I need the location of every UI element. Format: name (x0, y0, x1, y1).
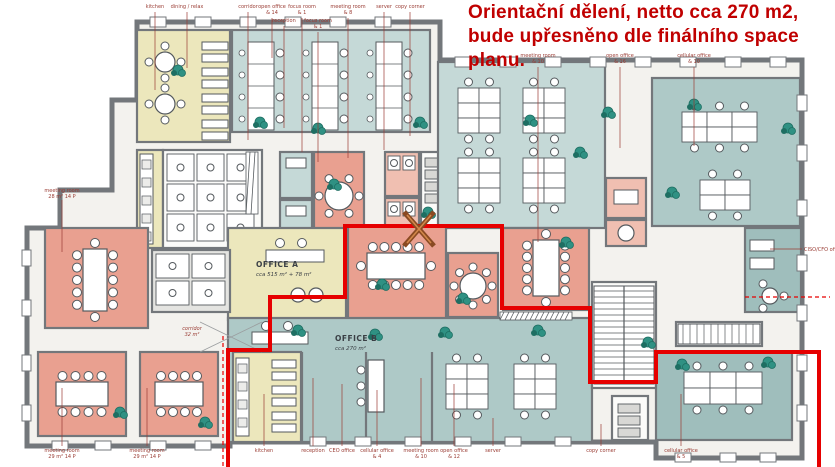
room-focus-booth-2 (606, 220, 646, 246)
svg-text:& 1: & 1 (314, 24, 323, 30)
annotation-text: Orientační dělení, netto cca 270 m2, bud… (468, 1, 799, 73)
room-open-office-mid (438, 62, 605, 228)
room-cellular-office-tr (652, 78, 800, 226)
room-kitchen-b (233, 352, 301, 442)
svg-text:CEO office: CEO office (329, 448, 355, 454)
room-ciso-cfo-office (745, 228, 801, 312)
svg-text:& 10: & 10 (415, 454, 427, 460)
room-stairs-main (592, 282, 656, 388)
room-dining-relax (137, 30, 230, 142)
svg-text:CISO/CFO office: CISO/CFO office (804, 247, 835, 253)
svg-text:28 m² 14 P: 28 m² 14 P (48, 194, 75, 200)
room-copy-corner-room (612, 396, 648, 440)
room-wc-mid-1 (385, 152, 419, 196)
floor-plan: kitchendining / relaxcorridoropen office… (0, 0, 835, 467)
room-meeting-room-bl1 (38, 352, 126, 436)
svg-text:32 m²: 32 m² (185, 332, 200, 338)
hatch-strip (500, 312, 572, 320)
plan-root: kitchendining / relaxcorridoropen office… (22, 4, 835, 467)
svg-text:corridor: corridor (238, 4, 258, 10)
svg-text:OFFICE A: OFFICE A (256, 260, 298, 269)
svg-text:server: server (485, 448, 502, 454)
svg-text:cca 515 m² + 78 m²: cca 515 m² + 78 m² (256, 271, 312, 278)
svg-text:server: server (376, 4, 393, 10)
annotation-line-1: Orientační dělení, netto cca 270 m2, (468, 1, 799, 25)
annotation-line-3: planu. (468, 49, 799, 73)
svg-text:& 14: & 14 (266, 10, 278, 16)
svg-text:& 12: & 12 (448, 454, 460, 460)
room-focus-booth-1 (606, 178, 646, 218)
svg-text:copy corner: copy corner (395, 4, 426, 10)
svg-text:& 8: & 8 (344, 10, 353, 16)
room-meeting-room-b (503, 228, 589, 310)
svg-text:cca 270 m²: cca 270 m² (335, 345, 367, 352)
svg-text:dining / relax: dining / relax (171, 4, 204, 10)
room-wc-left (152, 250, 230, 312)
room-stairs-low (676, 322, 762, 346)
svg-text:& 1: & 1 (298, 10, 307, 16)
hatch-strip (246, 152, 258, 214)
svg-text:copy corner: copy corner (586, 448, 617, 454)
svg-text:reception: reception (301, 448, 325, 454)
svg-text:29 m² 14 P: 29 m² 14 P (133, 454, 160, 460)
room-focus-room-1 (280, 152, 312, 198)
svg-text:reception: reception (272, 18, 296, 24)
room-round-room (448, 253, 498, 317)
svg-text:& 5: & 5 (677, 454, 686, 460)
svg-text:OFFICE B: OFFICE B (335, 334, 377, 343)
room-open-office-top (232, 30, 430, 132)
room-meeting-room-left (45, 228, 148, 328)
svg-text:kitchen: kitchen (146, 4, 164, 10)
svg-text:kitchen: kitchen (255, 448, 273, 454)
svg-text:29 m² 14 P: 29 m² 14 P (48, 454, 75, 460)
svg-text:& 4: & 4 (373, 454, 382, 460)
annotation-line-2: bude upřesněno dle finálního space (468, 25, 799, 49)
